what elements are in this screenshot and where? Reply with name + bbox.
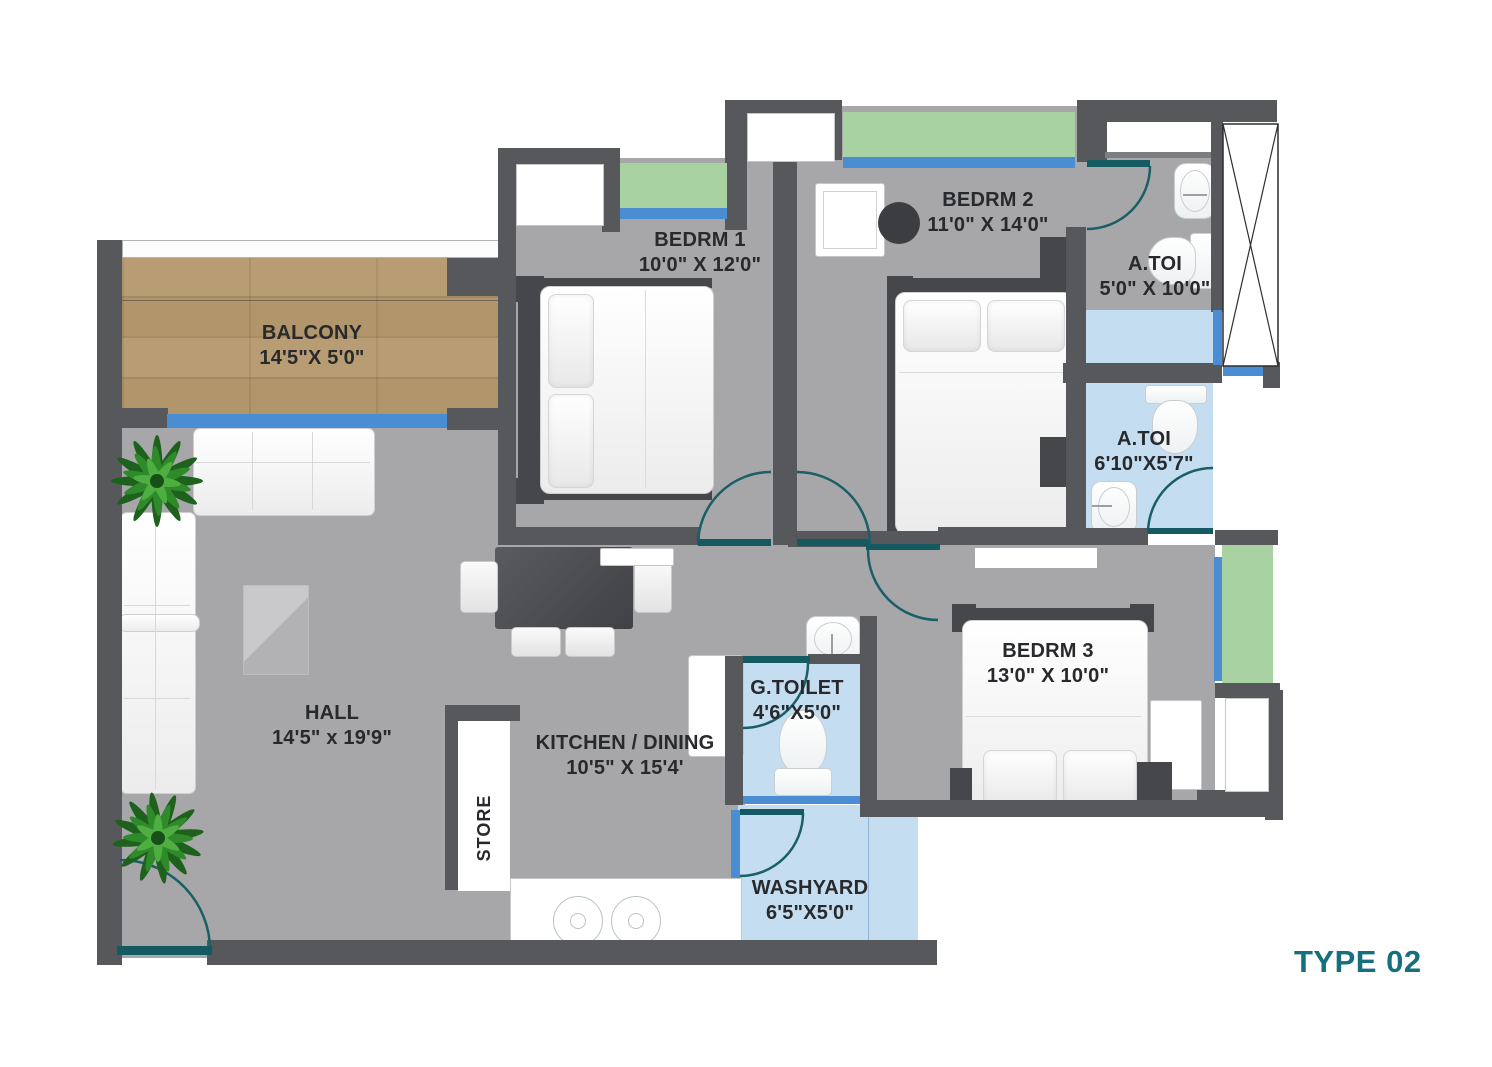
balcony-deck-line (122, 300, 505, 301)
room-dims: 10'5" X 15'4' (536, 756, 715, 781)
washbasin-tap (1183, 194, 1207, 196)
bed3-duvet-line (966, 716, 1142, 717)
dining-chair (511, 627, 561, 657)
room-dims: 14'5" x 19'9" (272, 726, 392, 751)
window-glass (843, 157, 1075, 168)
wall (122, 408, 168, 428)
bed1-headboard (518, 282, 542, 500)
room-name: BEDRM 2 (927, 188, 1048, 213)
shaft-icon (1223, 124, 1278, 366)
bedrm2-dresser-frame (823, 191, 877, 249)
bed2-duvet-line (899, 372, 1067, 373)
bedrm2-wardrobe (1040, 437, 1066, 487)
window-glass (1214, 557, 1222, 681)
dining-chair (460, 561, 498, 613)
wall (1063, 363, 1222, 383)
room-name: STORE (473, 795, 496, 862)
bed1-duvet-line (645, 290, 646, 488)
room-name: A.TOI (1100, 252, 1211, 277)
atoi1-wet-floor (1080, 310, 1215, 365)
bedrm3-wardrobe-niche (975, 548, 1097, 568)
wall (1211, 122, 1223, 312)
washbasin-bowl (1180, 170, 1210, 212)
room-name: G.TOILET (750, 676, 843, 701)
balcony-railing (122, 240, 507, 258)
window-glass (620, 208, 727, 219)
wall (725, 100, 842, 113)
wall (1215, 530, 1278, 545)
wall (1263, 362, 1280, 388)
window-opening (516, 164, 604, 226)
sofa-left (120, 512, 196, 794)
wall (207, 940, 937, 965)
window-opening (1225, 698, 1269, 792)
floor-plan: BALCONY 14'5"X 5'0" BEDRM 1 10'0" X 12'0… (0, 0, 1492, 1067)
hall-entry-floor (120, 940, 210, 958)
room-dims: 14'5"X 5'0" (259, 346, 364, 371)
planter-strip (620, 163, 727, 209)
sofa-left-armrest (118, 614, 200, 632)
sofa-top (193, 428, 375, 516)
room-label-atoi2: A.TOI 6'10"X5'7" (1094, 427, 1193, 477)
wall (773, 158, 797, 545)
wall (1077, 100, 1107, 162)
washbasin-tap (1092, 505, 1112, 507)
planter-strip (843, 112, 1075, 158)
wall (1082, 528, 1148, 545)
bedrm2-nightstand (1040, 237, 1066, 287)
room-label-bedrm2: BEDRM 2 11'0" X 14'0" (927, 188, 1048, 238)
bed1-pillow (548, 394, 594, 488)
room-name: KITCHEN / DINING (536, 731, 715, 756)
wall (725, 100, 747, 230)
wall (447, 408, 505, 430)
sofa-top-back-line (196, 462, 370, 463)
room-label-gtoilet: G.TOILET 4'6"X5'0" (750, 676, 843, 726)
bed2-pillow (903, 300, 981, 352)
room-dims: 13'0" X 10'0" (987, 664, 1109, 689)
hall-sideboard (600, 548, 674, 566)
wall (860, 800, 1217, 817)
toilet-tank (774, 768, 832, 796)
planter-strip (1222, 545, 1273, 683)
window-glass (167, 414, 447, 428)
bed2-pillow (987, 300, 1065, 352)
room-name: HALL (272, 701, 392, 726)
washbasin-tap (831, 634, 833, 656)
window-glass (1223, 366, 1263, 376)
wall (445, 705, 458, 890)
washbasin-bowl (1098, 487, 1130, 527)
wall (1105, 100, 1277, 122)
room-dims: 10'0" X 12'0" (639, 253, 761, 278)
sofa-top-cushion-line (252, 432, 253, 510)
window-glass (731, 810, 740, 878)
sofa-left-cushion-line (124, 605, 190, 606)
room-label-store: STORE (473, 795, 496, 862)
room-label-washyard: WASHYARD 6'5"X5'0" (752, 876, 868, 926)
stove-burner-dot (570, 913, 586, 929)
window-opening (747, 113, 835, 162)
wall (1105, 152, 1215, 158)
wall (1066, 227, 1086, 545)
room-name: BEDRM 1 (639, 228, 761, 253)
wall (447, 258, 505, 296)
sofa-top-cushion-line (312, 432, 313, 510)
wall (97, 240, 122, 965)
room-name: WASHYARD (752, 876, 868, 901)
sofa-left-back-line (155, 515, 156, 789)
window-glass (1213, 310, 1222, 365)
bedrm2-stool (878, 202, 920, 244)
wall (602, 148, 620, 232)
hall-rug (243, 585, 309, 675)
washbasin-bowl (814, 622, 852, 656)
stove-burner-dot (628, 913, 644, 929)
bed3-foot-post (950, 768, 972, 804)
room-dims: 11'0" X 14'0" (927, 213, 1048, 238)
room-name: BEDRM 3 (987, 639, 1109, 664)
window-glass (743, 796, 860, 804)
room-label-bedrm3: BEDRM 3 13'0" X 10'0" (987, 639, 1109, 689)
room-dims: 6'10"X5'7" (1094, 452, 1193, 477)
plan-type-title: TYPE 02 (1294, 944, 1422, 980)
sofa-left-cushion-line (124, 698, 190, 699)
wall (498, 527, 700, 545)
room-label-atoi1: A.TOI 5'0" X 10'0" (1100, 252, 1211, 302)
room-dims: 4'6"X5'0" (750, 701, 843, 726)
dining-chair (634, 561, 672, 613)
dining-chair (565, 627, 615, 657)
wall (498, 148, 516, 545)
room-label-kitchen: KITCHEN / DINING 10'5" X 15'4' (536, 731, 715, 781)
wall (938, 527, 1080, 545)
room-label-balcony: BALCONY 14'5"X 5'0" (259, 321, 364, 371)
room-dims: 6'5"X5'0" (752, 901, 868, 926)
bed1-pillow (548, 294, 594, 388)
room-label-hall: HALL 14'5" x 19'9" (272, 701, 392, 751)
wall (725, 656, 743, 805)
room-name: BALCONY (259, 321, 364, 346)
room-dims: 5'0" X 10'0" (1100, 277, 1211, 302)
room-label-bedrm1: BEDRM 1 10'0" X 12'0" (639, 228, 761, 278)
wall (808, 654, 860, 664)
wall (788, 531, 940, 547)
wall (860, 616, 877, 816)
room-name: A.TOI (1094, 427, 1193, 452)
